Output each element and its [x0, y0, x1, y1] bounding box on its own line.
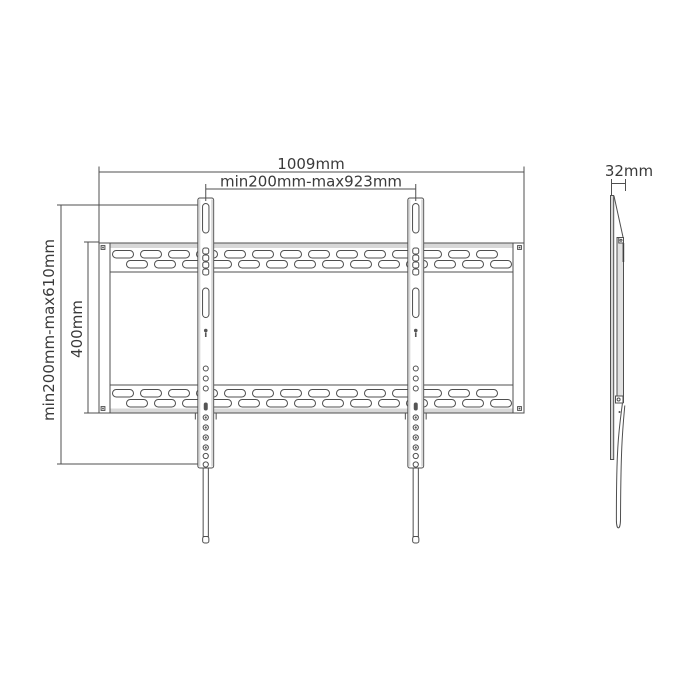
front-view-dimensions: 1009mm min200mm-max923mm min200mm-max610…: [40, 155, 524, 464]
wall-plate: [99, 243, 524, 413]
vesa-slot: [155, 261, 176, 269]
vesa-slot: [477, 390, 498, 398]
bracket-screw-hole-center: [205, 446, 207, 448]
vesa-slot: [239, 261, 260, 269]
side-wall-plate-profile: [611, 196, 614, 460]
bracket-rod-cap: [413, 537, 419, 544]
bracket-edge-shade: [198, 200, 200, 467]
bracket-rod-cap: [203, 537, 209, 544]
vesa-slot: [295, 261, 316, 269]
side-view-dimensions: 32mm: [605, 162, 653, 196]
bracket-rail-slot: [203, 269, 209, 275]
vesa-slot: [309, 251, 330, 259]
vesa-slot: [449, 251, 470, 259]
vesa-slot: [491, 261, 512, 269]
bracket-hole: [413, 453, 418, 458]
end-cap-left: [99, 243, 110, 413]
bracket-edge-shade: [211, 200, 213, 467]
bracket-slot-top: [203, 204, 209, 234]
bracket-screw-mark: [205, 333, 207, 338]
bracket-hole: [413, 366, 418, 371]
vesa-slot: [169, 390, 190, 398]
bracket-slot-top: [413, 204, 419, 234]
vesa-slot: [491, 400, 512, 408]
bracket-rail-slot: [413, 269, 419, 275]
bracket-edge-shade: [408, 200, 410, 467]
bracket-screw-mark: [414, 329, 418, 333]
dim-label-depth: 32mm: [605, 162, 653, 180]
bracket-rod: [413, 468, 418, 537]
drawing-canvas: 1009mm min200mm-max923mm min200mm-max610…: [0, 0, 700, 700]
vesa-slot: [169, 251, 190, 259]
vesa-slot: [463, 400, 484, 408]
vesa-slot: [323, 400, 344, 408]
bracket-rod: [203, 468, 208, 537]
corner-hole-dot: [102, 247, 104, 249]
bracket-screw-mark: [204, 329, 208, 333]
dim-label-vertical-pattern: 400mm: [68, 300, 86, 358]
side-view: 32mm: [605, 162, 653, 528]
vesa-slot: [225, 251, 246, 259]
bracket-screw-hole-center: [415, 416, 417, 418]
dim-label-total-width: 1009mm: [277, 155, 344, 173]
bracket-hole: [203, 462, 208, 467]
bracket-rail-slot: [413, 255, 419, 261]
bracket-rail-slot: [413, 248, 419, 254]
vesa-slot: [253, 251, 274, 259]
vesa-slot: [337, 390, 358, 398]
vesa-slot: [239, 400, 260, 408]
side-strap-anchor-dot: [619, 411, 621, 413]
vesa-slot: [141, 251, 162, 259]
bracket-screw-hole-center: [205, 426, 207, 428]
vesa-slot: [435, 400, 456, 408]
bracket-screw-hole-center: [415, 446, 417, 448]
bracket-hole: [203, 453, 208, 458]
bracket-screw-hole-center: [205, 416, 207, 418]
end-cap-right: [513, 243, 524, 413]
vesa-slot: [379, 400, 400, 408]
bracket-rail-slot: [413, 262, 419, 268]
bracket-screw-hole-center: [205, 436, 207, 438]
side-top-hook-hole: [620, 239, 622, 241]
bracket-hole: [203, 386, 208, 391]
vesa-slot: [337, 251, 358, 259]
vesa-slot: [435, 261, 456, 269]
vesa-slot: [323, 261, 344, 269]
bracket-rail-slot: [203, 255, 209, 261]
bracket-hole: [413, 386, 418, 391]
vesa-slot: [365, 390, 386, 398]
bracket-rail-slot: [203, 262, 209, 268]
side-pull-strap-loop: [616, 404, 624, 528]
vesa-slot: [113, 251, 134, 259]
vesa-slot: [463, 261, 484, 269]
vesa-slot: [281, 251, 302, 259]
vesa-slot: [267, 400, 288, 408]
bracket-screw-hole-center: [415, 426, 417, 428]
vesa-slot: [351, 400, 372, 408]
top-rail-flange: [100, 244, 524, 249]
corner-hole-dot: [519, 408, 521, 410]
vesa-slot: [127, 400, 148, 408]
corner-hole-dot: [519, 247, 521, 249]
bracket-slot-middle: [203, 288, 209, 318]
vesa-slot: [351, 261, 372, 269]
vesa-slot: [253, 390, 274, 398]
vesa-slot: [225, 390, 246, 398]
mounting-bracket-right: [405, 198, 426, 543]
bracket-screw-mark: [415, 333, 417, 338]
bracket-hole: [203, 366, 208, 371]
vesa-slot: [295, 400, 316, 408]
vesa-slot: [155, 400, 176, 408]
side-bracket-profile: [617, 238, 624, 403]
vesa-slot: [309, 390, 330, 398]
vesa-slot: [477, 251, 498, 259]
wall-mount-dimension-diagram: 1009mm min200mm-max923mm min200mm-max610…: [0, 0, 700, 700]
bracket-screw-hole-center: [415, 436, 417, 438]
bracket-rail-slot: [203, 248, 209, 254]
bracket-hole: [413, 376, 418, 381]
bracket-latch-slot: [414, 403, 418, 411]
vesa-slot: [113, 390, 134, 398]
vesa-slot: [127, 261, 148, 269]
vesa-slot: [379, 261, 400, 269]
vesa-slot: [449, 390, 470, 398]
vesa-slot: [365, 251, 386, 259]
front-view: 1009mm min200mm-max923mm min200mm-max610…: [40, 155, 524, 543]
bracket-latch-slot: [204, 403, 208, 411]
side-bottom-lock-hole: [617, 398, 620, 401]
dim-label-vertical-pattern-range: min200mm-max610mm: [40, 239, 58, 421]
mounting-bracket-left: [195, 198, 216, 543]
bottom-rail-flange: [100, 409, 524, 413]
bracket-hole: [203, 376, 208, 381]
bracket-hole: [413, 462, 418, 467]
side-top-hook-edge: [614, 196, 623, 237]
bracket-slot-middle: [413, 288, 419, 318]
dim-label-horizontal-pattern: min200mm-max923mm: [220, 173, 402, 191]
corner-hole-dot: [102, 408, 104, 410]
vesa-slot: [141, 390, 162, 398]
vesa-slot: [281, 390, 302, 398]
bracket-edge-shade: [421, 200, 423, 467]
vesa-slot: [267, 261, 288, 269]
